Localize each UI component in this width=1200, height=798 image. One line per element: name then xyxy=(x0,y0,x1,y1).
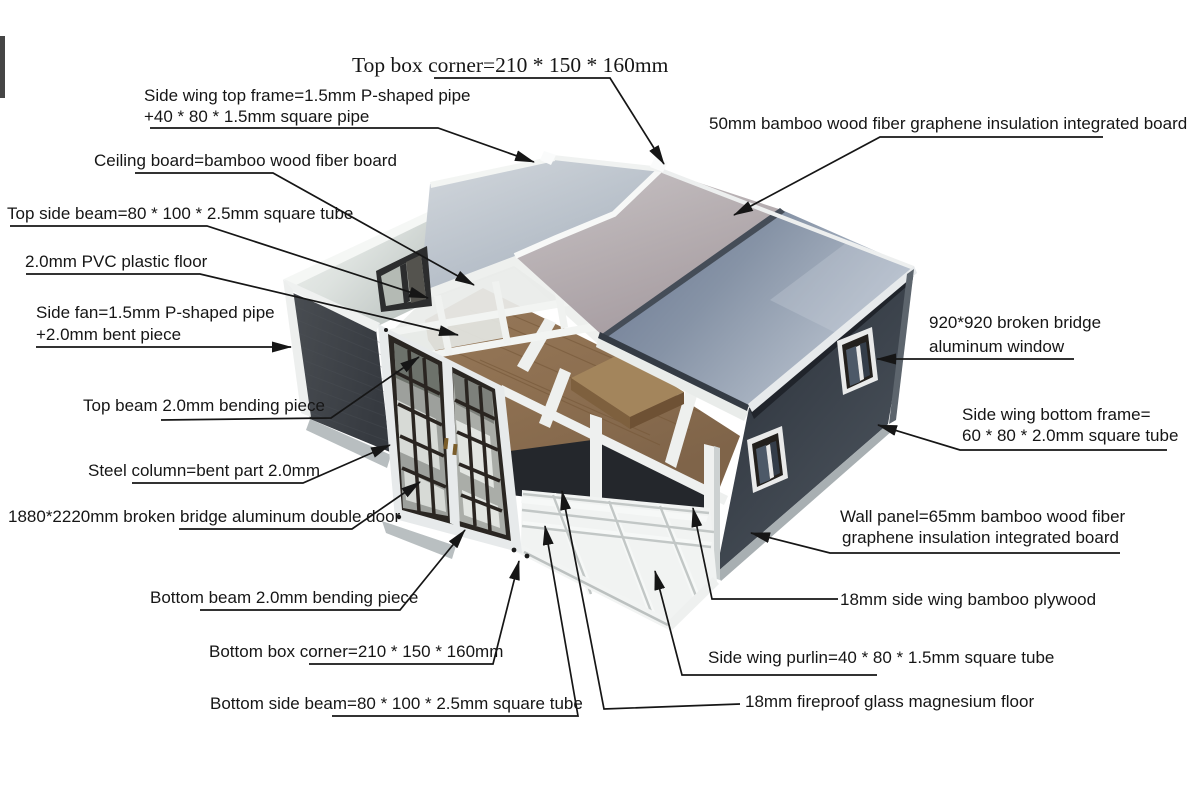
svg-text:920*920 broken bridge: 920*920 broken bridge xyxy=(929,313,1101,332)
svg-text:Side wing purlin=40 * 80 * 1.5: Side wing purlin=40 * 80 * 1.5mm square … xyxy=(708,648,1054,667)
svg-text:Bottom side beam=80 * 100 * 2.: Bottom side beam=80 * 100 * 2.5mm square… xyxy=(210,694,583,713)
svg-text:Ceiling board=bamboo wood fibe: Ceiling board=bamboo wood fiber board xyxy=(94,151,397,170)
svg-text:Top box corner=210 * 150 * 160: Top box corner=210 * 150 * 160mm xyxy=(352,53,669,77)
svg-text:Bottom box corner=210 * 150 *: Bottom box corner=210 * 150 * 160mm xyxy=(209,642,503,661)
svg-text:1880*2220mm broken bridge alum: 1880*2220mm broken bridge aluminum doubl… xyxy=(8,507,401,526)
svg-text:Side wing top frame=1.5mm P-sh: Side wing top frame=1.5mm P-shaped pipe xyxy=(144,86,471,105)
svg-text:+2.0mm bent piece: +2.0mm bent piece xyxy=(36,325,181,344)
svg-text:Top side beam=80 * 100 * 2.5mm: Top side beam=80 * 100 * 2.5mm square tu… xyxy=(7,204,353,223)
svg-text:18mm fireproof glass magnesium: 18mm fireproof glass magnesium floor xyxy=(745,692,1034,711)
svg-text:Bottom beam 2.0mm bending piec: Bottom beam 2.0mm bending piece xyxy=(150,588,418,607)
svg-text:+40 * 80 * 1.5mm square pipe: +40 * 80 * 1.5mm square pipe xyxy=(144,107,369,126)
svg-text:Side wing bottom frame=: Side wing bottom frame= xyxy=(962,405,1151,424)
svg-text:graphene insulation integrated: graphene insulation integrated board xyxy=(842,528,1119,547)
svg-text:Top beam 2.0mm bending piece: Top beam 2.0mm bending piece xyxy=(83,396,325,415)
svg-text:18mm side wing bamboo plywood: 18mm side wing bamboo plywood xyxy=(840,590,1096,609)
svg-text:2.0mm PVC plastic floor: 2.0mm PVC plastic floor xyxy=(25,252,208,271)
svg-text:50mm bamboo wood fiber graphen: 50mm bamboo wood fiber graphene insulati… xyxy=(709,114,1187,133)
svg-text:Steel column=bent part 2.0mm: Steel column=bent part 2.0mm xyxy=(88,461,320,480)
svg-text:Wall panel=65mm bamboo wood fi: Wall panel=65mm bamboo wood fiber xyxy=(840,507,1126,526)
svg-text:60 * 80 * 2.0mm square tube: 60 * 80 * 2.0mm square tube xyxy=(962,426,1178,445)
svg-text:aluminum window: aluminum window xyxy=(929,337,1065,356)
svg-text:Side fan=1.5mm P-shaped pipe: Side fan=1.5mm P-shaped pipe xyxy=(36,303,275,322)
